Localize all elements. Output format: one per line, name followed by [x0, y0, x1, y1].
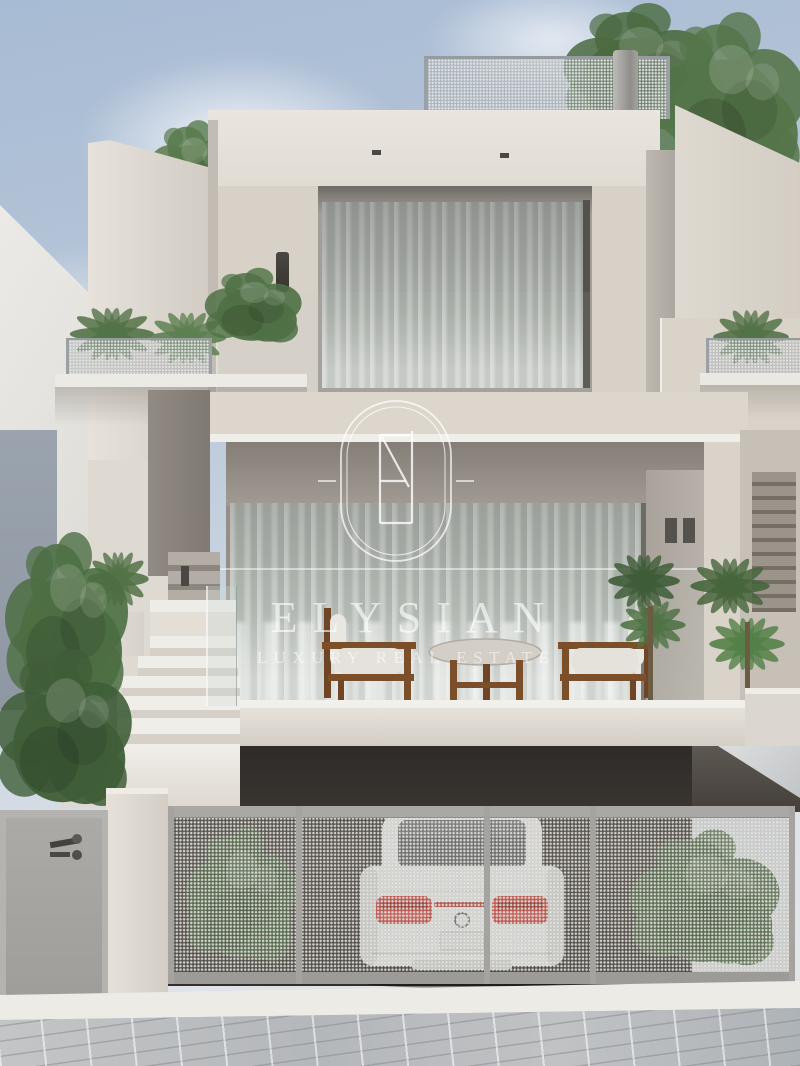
- left-balcony-ledge: [55, 374, 307, 387]
- monogram-EN: [380, 431, 412, 523]
- rooftop-pole: [613, 50, 638, 118]
- watermark-brand: ELYSIAN: [0, 592, 800, 643]
- terrace-slab: [160, 700, 745, 746]
- gate-frame-member: [484, 806, 490, 984]
- gate-handle-bar: [50, 852, 70, 857]
- gate-frame-member: [296, 806, 302, 984]
- wall-sconce: [665, 518, 677, 543]
- watermark-logo: [316, 395, 484, 567]
- right-balcony-ledge: [700, 373, 800, 385]
- wall-sconce: [683, 518, 695, 543]
- gate-handle-knob: [72, 834, 82, 844]
- gate-frame-member: [590, 806, 596, 984]
- left-balcony-railing-mesh: [66, 338, 212, 378]
- architectural-render-canvas: ELYSIAN LUXURY REAL ESTATE: [0, 0, 800, 1066]
- gate-frame-member: [789, 806, 795, 984]
- watermark-tagline: LUXURY REAL ESTATE: [0, 648, 800, 668]
- gate-top-rail: [168, 806, 795, 818]
- soffit-light: [372, 150, 381, 155]
- gate-handle-knob: [72, 850, 82, 860]
- penthouse-parapet: [208, 110, 660, 186]
- entrance-sconce: [181, 566, 189, 586]
- gate-frame-member: [168, 806, 174, 984]
- fence-pillar: [106, 788, 168, 1022]
- garage-gate-mesh: [168, 817, 795, 972]
- soffit-light: [500, 153, 509, 158]
- right-terrace-parapet: [745, 688, 800, 746]
- right-balcony-railing-mesh: [706, 338, 800, 377]
